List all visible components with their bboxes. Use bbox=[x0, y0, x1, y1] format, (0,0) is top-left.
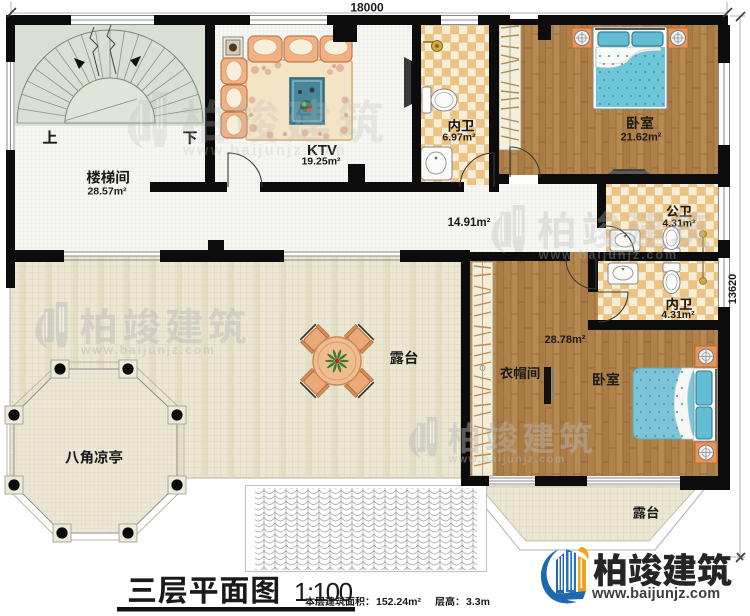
svg-text:152.24m²: 152.24m² bbox=[376, 596, 421, 608]
svg-text:4.31m²: 4.31m² bbox=[661, 309, 695, 321]
svg-text:28.57m²: 28.57m² bbox=[87, 186, 127, 198]
svg-text:6.97m²: 6.97m² bbox=[442, 132, 476, 144]
svg-text:14.91m²: 14.91m² bbox=[448, 217, 491, 229]
svg-text:www.baijunjz.com: www.baijunjz.com bbox=[182, 143, 346, 159]
svg-text:www.baijunjz.com: www.baijunjz.com bbox=[591, 586, 720, 602]
svg-text:www.baijunjz.com: www.baijunjz.com bbox=[80, 343, 216, 357]
svg-text:3.3m: 3.3m bbox=[466, 596, 490, 608]
svg-text:21.62m²: 21.62m² bbox=[621, 132, 662, 144]
svg-text:13620: 13620 bbox=[727, 274, 739, 305]
svg-text:www.baijunjz.com: www.baijunjz.com bbox=[448, 453, 566, 465]
svg-text:28.78m²: 28.78m² bbox=[545, 334, 586, 346]
svg-text:18000: 18000 bbox=[350, 1, 384, 15]
svg-text:www.baijunjz.com: www.baijunjz.com bbox=[538, 248, 678, 262]
